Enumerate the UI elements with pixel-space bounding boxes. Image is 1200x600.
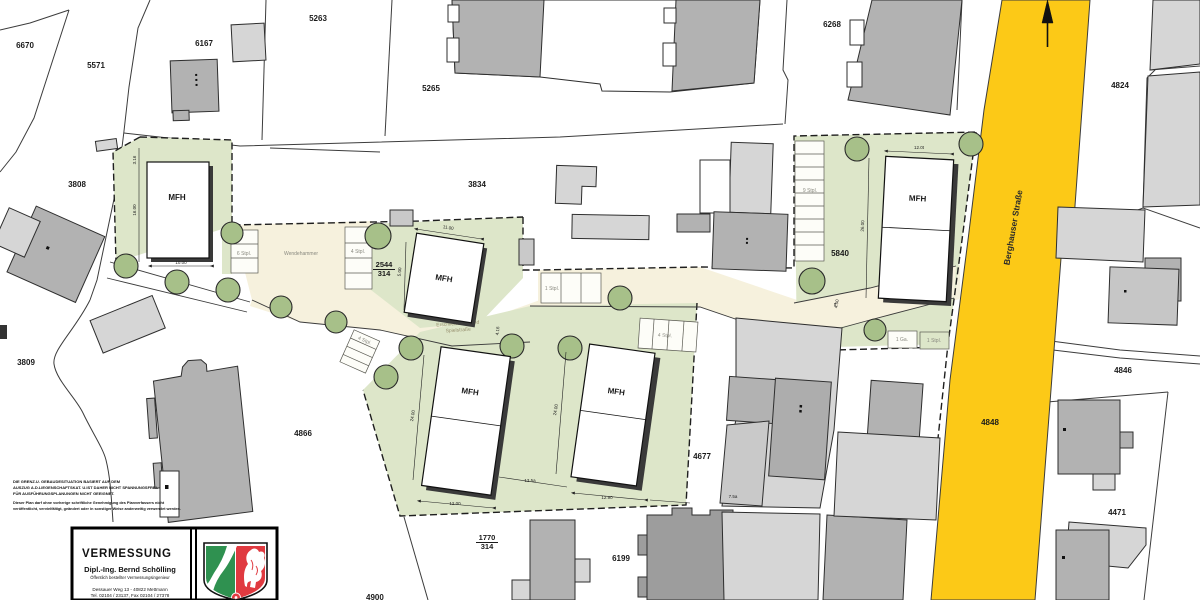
svg-text:5263: 5263 — [309, 14, 327, 23]
svg-text:5.00: 5.00 — [397, 267, 403, 277]
svg-text:AUSZUG A.D.LIEGENSCHAFTSKAT. U: AUSZUG A.D.LIEGENSCHAFTSKAT. U.IST DAHER… — [13, 485, 158, 490]
svg-text:1 Ga.: 1 Ga. — [896, 337, 908, 343]
svg-text:4677: 4677 — [693, 452, 711, 461]
svg-text:10.00: 10.00 — [175, 260, 187, 265]
svg-text:12.00: 12.00 — [449, 501, 461, 506]
svg-text:16.00: 16.00 — [132, 204, 137, 216]
svg-text:4 Stpl.: 4 Stpl. — [658, 332, 673, 339]
svg-text:DIE GRENZ.U. GEBAUDESITUATION: DIE GRENZ.U. GEBAUDESITUATION BASIERT AU… — [13, 479, 121, 484]
svg-text:1 Stpl.: 1 Stpl. — [927, 338, 941, 344]
svg-text:Tel. 02104 / 23137, Fax 02104: Tel. 02104 / 23137, Fax 02104 / 27378 — [91, 593, 170, 598]
svg-text:6670: 6670 — [16, 41, 34, 50]
svg-text:9 Stpl.: 9 Stpl. — [803, 188, 817, 194]
svg-text:4866: 4866 — [294, 429, 312, 438]
svg-text:4846: 4846 — [1114, 366, 1132, 375]
svg-text:3808: 3808 — [68, 180, 86, 189]
svg-text:12.90: 12.90 — [601, 495, 613, 500]
svg-text:4.16: 4.16 — [495, 326, 501, 336]
svg-text:7.5a: 7.5a — [729, 494, 738, 499]
svg-text:4900: 4900 — [366, 593, 384, 600]
svg-text:3834: 3834 — [468, 180, 486, 189]
svg-text:6167: 6167 — [195, 39, 213, 48]
svg-text:Dipl.-Ing. Bernd Schölling: Dipl.-Ing. Bernd Schölling — [84, 565, 176, 574]
svg-text:Öffentlich bestellter Vermessu: Öffentlich bestellter Vermessungsingenie… — [90, 575, 170, 580]
svg-text:314: 314 — [378, 269, 391, 278]
svg-text:MFH: MFH — [168, 193, 186, 202]
svg-text:Wendehammer: Wendehammer — [284, 251, 318, 257]
svg-text:314: 314 — [481, 542, 494, 551]
svg-text:Dessauer Weg 13 - 40822 Mett: Dessauer Weg 13 - 40822 Mettmann — [92, 587, 168, 592]
svg-text:6199: 6199 — [612, 554, 630, 563]
svg-text:veröffentlicht, vervielfältigt: veröffentlicht, vervielfältigt, geändert… — [13, 507, 181, 511]
svg-text:2544: 2544 — [376, 260, 394, 269]
svg-text:4471: 4471 — [1108, 508, 1126, 517]
svg-text:13.5a: 13.5a — [524, 478, 536, 483]
svg-text:6268: 6268 — [823, 20, 841, 29]
svg-text:4 Stpl.: 4 Stpl. — [351, 249, 365, 255]
svg-text:3809: 3809 — [17, 358, 35, 367]
svg-text:5571: 5571 — [87, 61, 105, 70]
svg-text:1 Stpl.: 1 Stpl. — [545, 286, 559, 292]
svg-text:4848: 4848 — [981, 418, 999, 427]
svg-text:5840: 5840 — [831, 249, 849, 258]
svg-text:Dieser Plan darf ohne vorherig: Dieser Plan darf ohne vorherige schriftl… — [13, 501, 165, 505]
svg-text:4824: 4824 — [1111, 81, 1129, 90]
svg-text:MFH: MFH — [909, 194, 927, 204]
svg-text:3.16: 3.16 — [132, 155, 137, 164]
svg-text:6 Stpl.: 6 Stpl. — [237, 251, 251, 257]
svg-text:FÜR AUSFÜHRUNGSPLANUNGEN NICHT: FÜR AUSFÜHRUNGSPLANUNGEN NICHT GEEIGNET. — [13, 491, 114, 496]
svg-text:1770: 1770 — [479, 533, 496, 542]
svg-text:VERMESSUNG: VERMESSUNG — [82, 548, 172, 560]
svg-text:5265: 5265 — [422, 84, 440, 93]
svg-text:26.00: 26.00 — [860, 220, 865, 232]
svg-text:12.0t: 12.0t — [914, 145, 925, 150]
